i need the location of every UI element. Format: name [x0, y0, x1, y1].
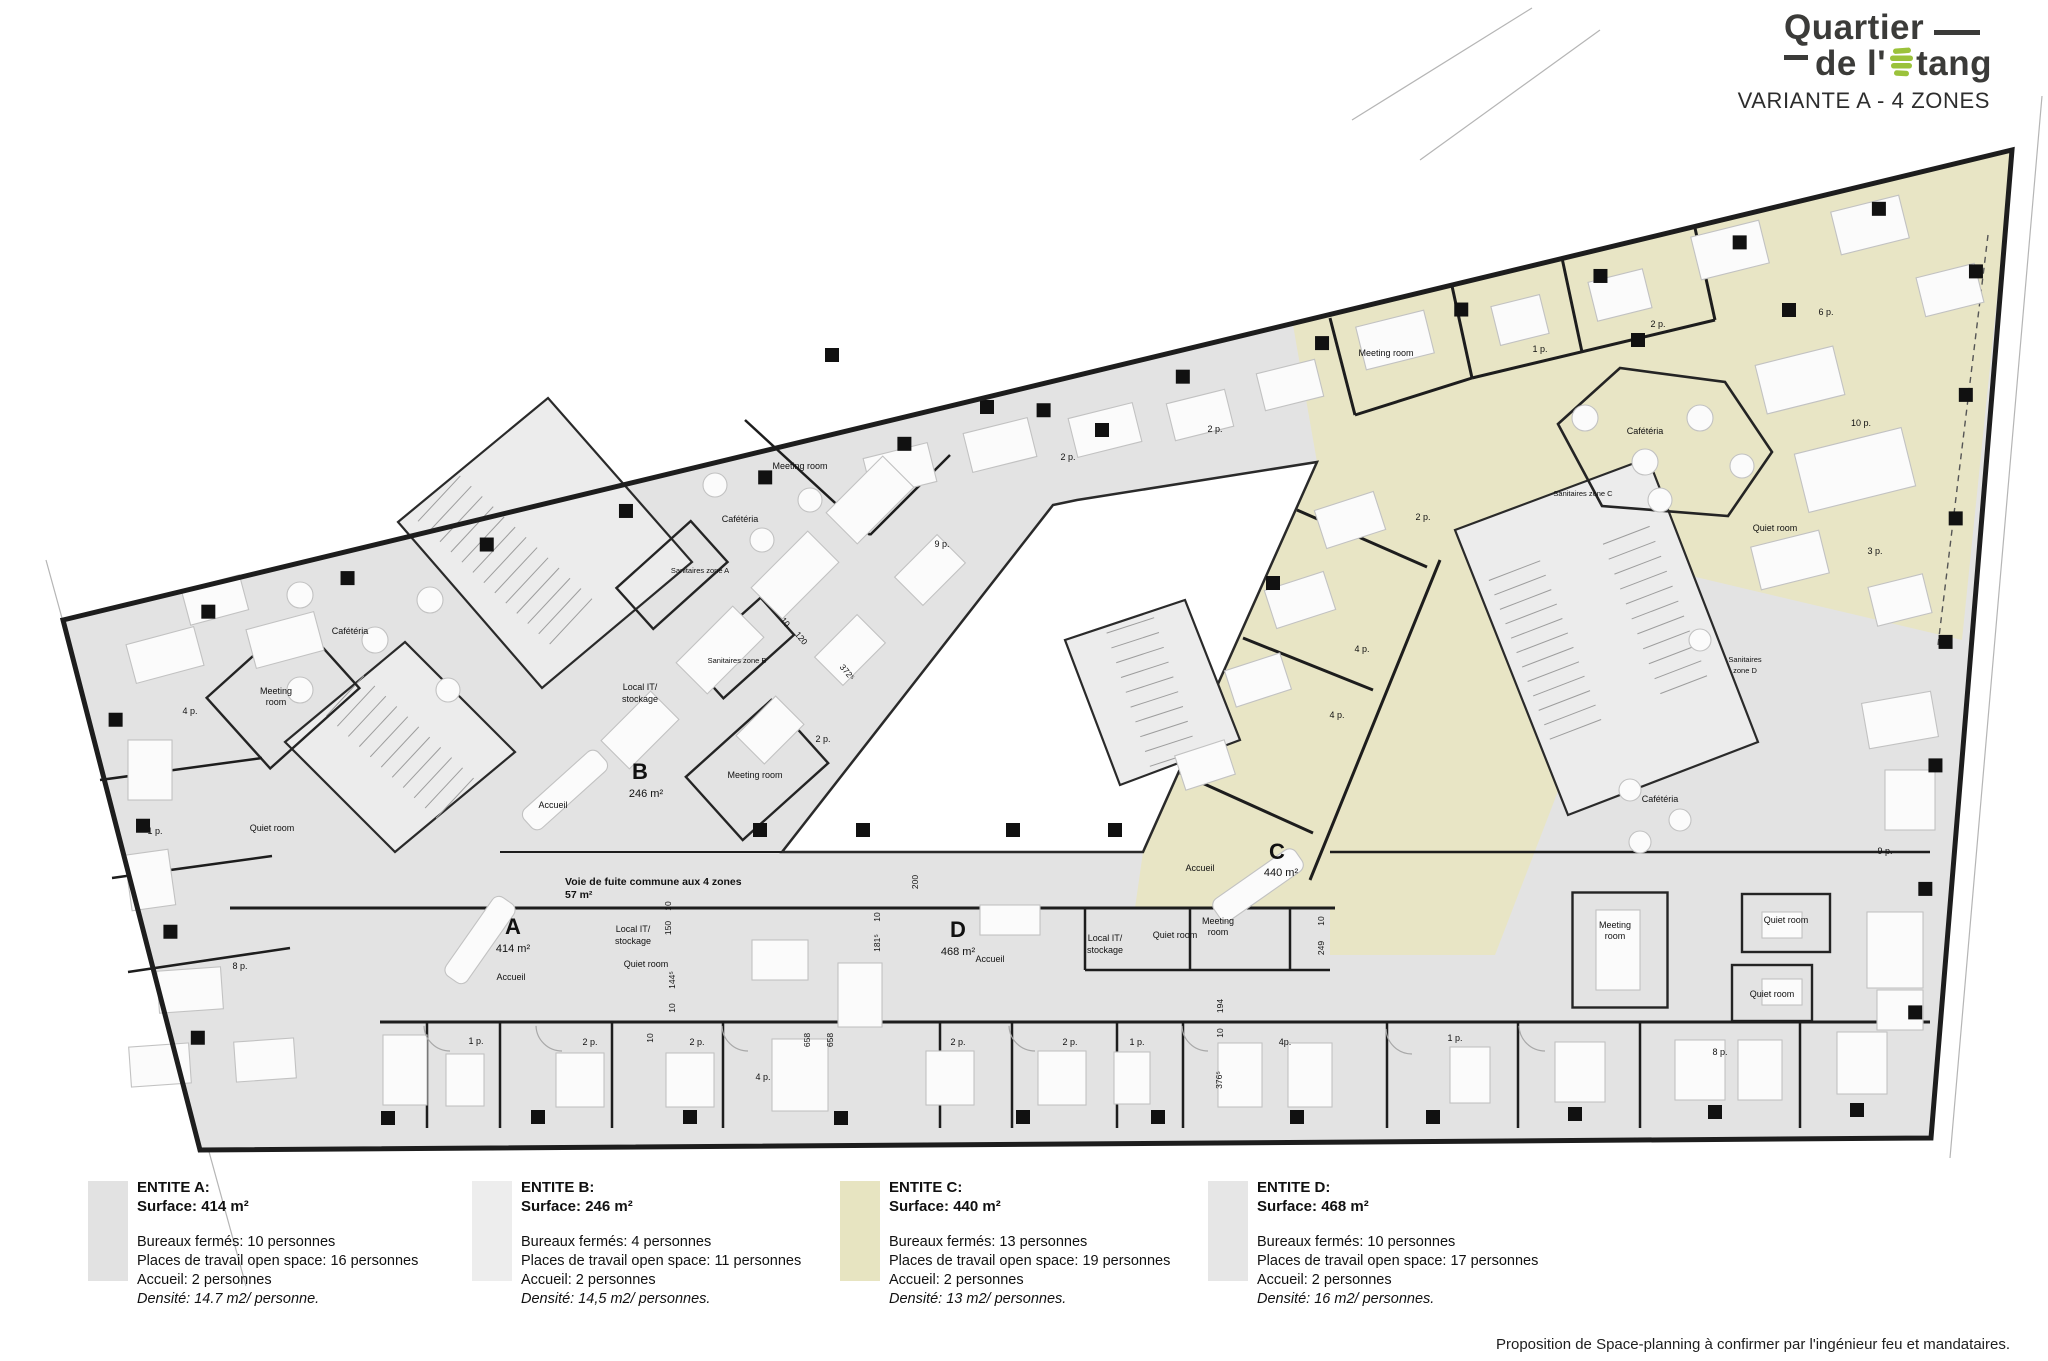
- legend-item-B: ENTITE B:Surface: 246 m²Bureaux fermés: …: [472, 1178, 844, 1309]
- table: [1648, 488, 1672, 512]
- desk: [1867, 912, 1923, 988]
- plan-label: 1 p.: [1532, 344, 1547, 354]
- table: [1632, 449, 1658, 475]
- logo-line1: Quartier: [1784, 10, 1924, 46]
- plan-label: Quiet room: [1750, 989, 1795, 999]
- plan-label: 2 p.: [815, 734, 830, 744]
- column: [834, 1111, 848, 1125]
- legend-line: Accueil: 2 personnes: [137, 1271, 460, 1290]
- plan-label: 4p.: [1279, 1037, 1292, 1047]
- column: [1733, 235, 1747, 249]
- legend-item-C: ENTITE C:Surface: 440 m²Bureaux fermés: …: [840, 1178, 1212, 1309]
- column: [1918, 882, 1932, 896]
- desk: [234, 1038, 297, 1082]
- plan-label: 150: [663, 921, 673, 935]
- column: [163, 925, 177, 939]
- plan-label: Cafétéria: [1642, 794, 1679, 804]
- floor-plan: B246 m²A414 m²C440 m²D468 m²Voie de fuit…: [0, 0, 2048, 1361]
- column: [1568, 1107, 1582, 1121]
- legend-density: Densité: 14.7 m2/ personne.: [137, 1290, 460, 1309]
- plan-label: room: [1208, 927, 1229, 937]
- plan-label: zone D: [1733, 666, 1757, 675]
- plan-label: room: [266, 697, 287, 707]
- plan-label: Cafétéria: [1627, 426, 1664, 436]
- table: [1572, 405, 1598, 431]
- plan-label: 1 p.: [468, 1036, 483, 1046]
- plan-label: Quiet room: [1153, 930, 1198, 940]
- plan-label: 2 p.: [1207, 424, 1222, 434]
- table: [436, 678, 460, 702]
- plan-label: 4 p.: [1354, 644, 1369, 654]
- column: [1454, 303, 1468, 317]
- column: [1108, 823, 1122, 837]
- column: [341, 571, 355, 585]
- column: [201, 605, 215, 619]
- plan-label: Voie de fuite commune aux 4 zones: [565, 876, 742, 888]
- plan-label: 144⁵: [667, 971, 677, 989]
- page-title: VARIANTE A - 4 ZONES: [1738, 88, 1990, 114]
- plan-label: D: [950, 917, 966, 942]
- plan-label: Quiet room: [250, 823, 295, 833]
- legend-line: Bureaux fermés: 10 personnes: [1257, 1233, 1580, 1252]
- plan-label: 1 p.: [147, 826, 162, 836]
- desk: [1555, 1042, 1605, 1102]
- column: [1315, 336, 1329, 350]
- plan-label: Meeting room: [1358, 348, 1413, 358]
- table: [750, 528, 774, 552]
- legend-line: Accueil: 2 personnes: [889, 1271, 1212, 1290]
- plan-label: Accueil: [496, 972, 525, 982]
- legend-surface: Surface: 468 m²: [1257, 1197, 1580, 1216]
- column: [758, 470, 772, 484]
- plan-label: C: [1269, 839, 1285, 864]
- column: [1037, 403, 1051, 417]
- desk: [157, 967, 224, 1013]
- plan-label: 4 p.: [755, 1072, 770, 1082]
- legend-title: ENTITE A:: [137, 1178, 460, 1197]
- site-line: [1352, 8, 1532, 120]
- plan-label: Cafétéria: [722, 514, 759, 524]
- legend-swatch: [472, 1181, 512, 1281]
- desk: [752, 940, 808, 980]
- logo-line2-pre: de l': [1815, 46, 1886, 82]
- desk: [838, 963, 882, 1027]
- column: [1908, 1005, 1922, 1019]
- plan-label: Local IT/: [616, 924, 651, 934]
- column: [1872, 202, 1886, 216]
- plan-label: Meeting: [1599, 920, 1631, 930]
- column: [531, 1110, 545, 1124]
- legend-density: Densité: 13 m2/ personnes.: [889, 1290, 1212, 1309]
- desk: [1218, 1043, 1262, 1107]
- logo-e-icon: [1888, 46, 1915, 79]
- plan-label: 10: [667, 1003, 677, 1013]
- plan-label: A: [505, 914, 521, 939]
- table: [417, 587, 443, 613]
- column: [480, 538, 494, 552]
- desk: [128, 740, 172, 800]
- plan-label: 9 p.: [934, 539, 949, 549]
- column: [1593, 269, 1607, 283]
- plan-label: 658: [802, 1033, 812, 1047]
- legend-item-A: ENTITE A:Surface: 414 m²Bureaux fermés: …: [88, 1178, 460, 1309]
- desk: [980, 905, 1040, 935]
- column: [1708, 1105, 1722, 1119]
- column: [1290, 1110, 1304, 1124]
- column: [1176, 370, 1190, 384]
- table: [1687, 405, 1713, 431]
- plan-label: 10: [663, 901, 673, 911]
- site-line: [1420, 30, 1600, 160]
- table: [1669, 809, 1691, 831]
- column: [1006, 823, 1020, 837]
- legend-line: Bureaux fermés: 13 personnes: [889, 1233, 1212, 1252]
- column: [1266, 576, 1280, 590]
- plan-label: Sanitaires zone A: [671, 566, 729, 575]
- legend-title: ENTITE C:: [889, 1178, 1212, 1197]
- column: [1959, 388, 1973, 402]
- plan-label: 181⁵: [872, 934, 882, 952]
- plan-label: 1 p.: [1129, 1037, 1144, 1047]
- legend-line: Places de travail open space: 19 personn…: [889, 1252, 1212, 1271]
- legend-swatch: [1208, 1181, 1248, 1281]
- plan-label: 2 p.: [689, 1037, 704, 1047]
- table: [1730, 454, 1754, 478]
- legend-density: Densité: 16 m2/ personnes.: [1257, 1290, 1580, 1309]
- column: [1151, 1110, 1165, 1124]
- logo-line2-post: tang: [1916, 46, 1992, 82]
- legend-line: Accueil: 2 personnes: [521, 1271, 844, 1290]
- plan-label: Local IT/: [1088, 933, 1123, 943]
- column: [1939, 635, 1953, 649]
- legend-line: Bureaux fermés: 4 personnes: [521, 1233, 844, 1252]
- plan-label: B: [632, 759, 648, 784]
- legend-title: ENTITE D:: [1257, 1178, 1580, 1197]
- column: [980, 400, 994, 414]
- column: [753, 823, 767, 837]
- legend-surface: Surface: 246 m²: [521, 1197, 844, 1216]
- plan-label: 2 p.: [1060, 452, 1075, 462]
- plan-label: 376⁵: [1214, 1071, 1224, 1089]
- plan-label: 10 p.: [1851, 418, 1871, 428]
- plan-label: Sanitaires zone C: [1553, 489, 1613, 498]
- plan-label: stockage: [1087, 945, 1123, 955]
- desk: [1837, 1032, 1887, 1094]
- column: [1969, 264, 1983, 278]
- plan-label: Meeting: [260, 686, 292, 696]
- plan-label: 414 m²: [496, 943, 531, 955]
- desk: [556, 1053, 604, 1107]
- table: [287, 582, 313, 608]
- plan-label: Meeting room: [727, 770, 782, 780]
- column: [1016, 1110, 1030, 1124]
- legend-line: Places de travail open space: 11 personn…: [521, 1252, 844, 1271]
- legend-swatch: [840, 1181, 880, 1281]
- plan-label: 246 m²: [629, 788, 664, 800]
- plan-label: Accueil: [975, 954, 1004, 964]
- plan-label: 10: [872, 912, 882, 922]
- plan-label: 10: [645, 1033, 655, 1043]
- plan-label: Sanitaires: [1728, 655, 1762, 664]
- desk: [383, 1035, 427, 1105]
- desk: [666, 1053, 714, 1107]
- plan-label: 4 p.: [182, 706, 197, 716]
- column: [1631, 333, 1645, 347]
- desk: [1885, 770, 1935, 830]
- plan-label: 658: [825, 1033, 835, 1047]
- table: [1619, 779, 1641, 801]
- legend-surface: Surface: 440 m²: [889, 1197, 1212, 1216]
- plan-label: Cafétéria: [332, 626, 369, 636]
- plan-label: 3 p.: [1867, 546, 1882, 556]
- table: [703, 473, 727, 497]
- logo-dash-icon: [1934, 30, 1980, 35]
- plan-label: 200: [910, 875, 920, 889]
- column: [1850, 1103, 1864, 1117]
- column: [1928, 758, 1942, 772]
- plan-label: 9 p.: [1877, 846, 1892, 856]
- legend-item-D: ENTITE D:Surface: 468 m²Bureaux fermés: …: [1208, 1178, 1580, 1309]
- desk: [926, 1051, 974, 1105]
- desk: [772, 1039, 828, 1111]
- desk: [1114, 1052, 1150, 1104]
- plan-label: room: [1605, 931, 1626, 941]
- table: [1689, 629, 1711, 651]
- plan-label: 8 p.: [1712, 1047, 1727, 1057]
- plan-label: 2 p.: [950, 1037, 965, 1047]
- plan-label: 8 p.: [232, 961, 247, 971]
- desk: [1038, 1051, 1086, 1105]
- column: [1782, 303, 1796, 317]
- plan-label: 6 p.: [1818, 307, 1833, 317]
- plan-label: Local IT/: [623, 682, 658, 692]
- plan-label: 249: [1316, 941, 1326, 955]
- legend-line: Places de travail open space: 17 personn…: [1257, 1252, 1580, 1271]
- plan-label: 194: [1215, 999, 1225, 1013]
- column: [825, 348, 839, 362]
- plan-label: stockage: [615, 936, 651, 946]
- logo-dash2-icon: [1784, 55, 1808, 60]
- plan-label: 468 m²: [941, 946, 976, 958]
- legend-line: Accueil: 2 personnes: [1257, 1271, 1580, 1290]
- legend-title: ENTITE B:: [521, 1178, 844, 1197]
- column: [1095, 423, 1109, 437]
- desk: [1738, 1040, 1782, 1100]
- column: [109, 713, 123, 727]
- plan-label: 10: [1215, 1028, 1225, 1038]
- plan-label: Quiet room: [1764, 915, 1809, 925]
- column: [856, 823, 870, 837]
- desk: [1288, 1043, 1332, 1107]
- legend-swatch: [88, 1181, 128, 1281]
- plan-label: 4 p.: [1329, 710, 1344, 720]
- plan-label: 2 p.: [1062, 1037, 1077, 1047]
- desk: [446, 1054, 484, 1106]
- plan-label: Meeting: [1202, 916, 1234, 926]
- plan-label: Accueil: [1185, 863, 1214, 873]
- plan-label: 440 m²: [1264, 867, 1299, 879]
- column: [1426, 1110, 1440, 1124]
- plan-label: 2 p.: [582, 1037, 597, 1047]
- desk: [1450, 1047, 1490, 1103]
- logo: Quartier de l' tang: [1784, 10, 1992, 81]
- column: [619, 504, 633, 518]
- legend-line: Places de travail open space: 16 personn…: [137, 1252, 460, 1271]
- column: [381, 1111, 395, 1125]
- table: [798, 488, 822, 512]
- legend-density: Densité: 14,5 m2/ personnes.: [521, 1290, 844, 1309]
- plan-label: Quiet room: [624, 959, 669, 969]
- legend-line: Bureaux fermés: 10 personnes: [137, 1233, 460, 1252]
- table: [1629, 831, 1651, 853]
- plan-label: 2 p.: [1650, 319, 1665, 329]
- plan-label: Meeting room: [772, 461, 827, 471]
- column: [1949, 511, 1963, 525]
- plan-label: 10: [1316, 916, 1326, 926]
- page: { "logo": {"line1":"Quartier","line2_pre…: [0, 0, 2048, 1361]
- column: [897, 437, 911, 451]
- plan-label: stockage: [622, 694, 658, 704]
- plan-label: 57 m²: [565, 889, 593, 901]
- plan-label: Accueil: [538, 800, 567, 810]
- footer-note: Proposition de Space-planning à confirme…: [1496, 1336, 2010, 1353]
- column: [683, 1110, 697, 1124]
- plan-label: Sanitaires zone B: [708, 656, 767, 665]
- plan-label: 2 p.: [1415, 512, 1430, 522]
- legend-surface: Surface: 414 m²: [137, 1197, 460, 1216]
- column: [191, 1031, 205, 1045]
- plan-label: Quiet room: [1753, 523, 1798, 533]
- plan-label: 1 p.: [1447, 1033, 1462, 1043]
